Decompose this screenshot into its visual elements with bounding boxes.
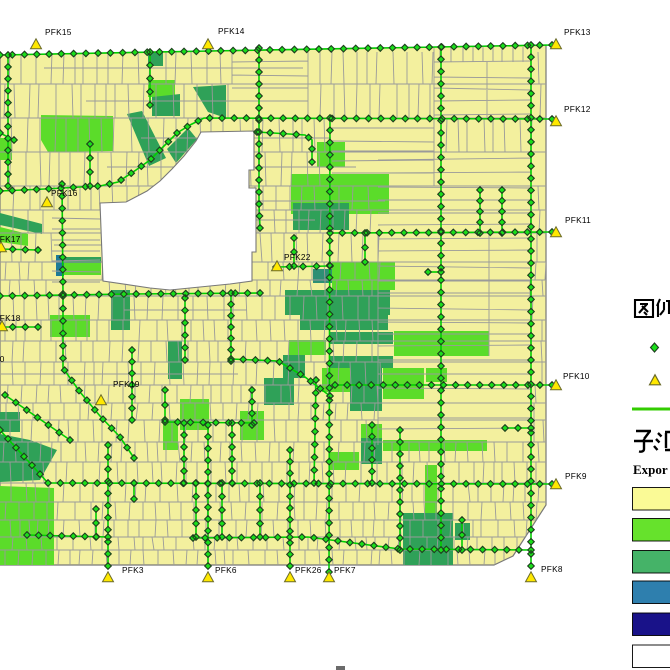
svg-text:PFK14: PFK14 [218,26,245,36]
svg-text:PFK7: PFK7 [334,565,356,575]
svg-text:PFK19: PFK19 [113,379,140,389]
svg-text:PFK3: PFK3 [122,565,144,575]
svg-text:PFK8: PFK8 [541,564,563,574]
svg-text:Expor: Expor [633,462,668,477]
svg-text:PFK26: PFK26 [295,565,322,575]
svg-text:PFK10: PFK10 [563,371,590,381]
svg-text:PFK9: PFK9 [565,471,587,481]
svg-text:PFK15: PFK15 [45,27,72,37]
svg-text:PFK11: PFK11 [565,215,591,225]
svg-text:PFK16: PFK16 [51,188,78,198]
svg-text:PFK6: PFK6 [215,565,237,575]
svg-text:PFK18: PFK18 [0,313,21,323]
svg-text:PFK12: PFK12 [564,104,591,114]
svg-text:PFK13: PFK13 [564,27,591,37]
svg-text:PFK17: PFK17 [0,234,21,244]
svg-text:PFK20: PFK20 [0,354,5,364]
svg-text:PFK22: PFK22 [284,252,311,262]
